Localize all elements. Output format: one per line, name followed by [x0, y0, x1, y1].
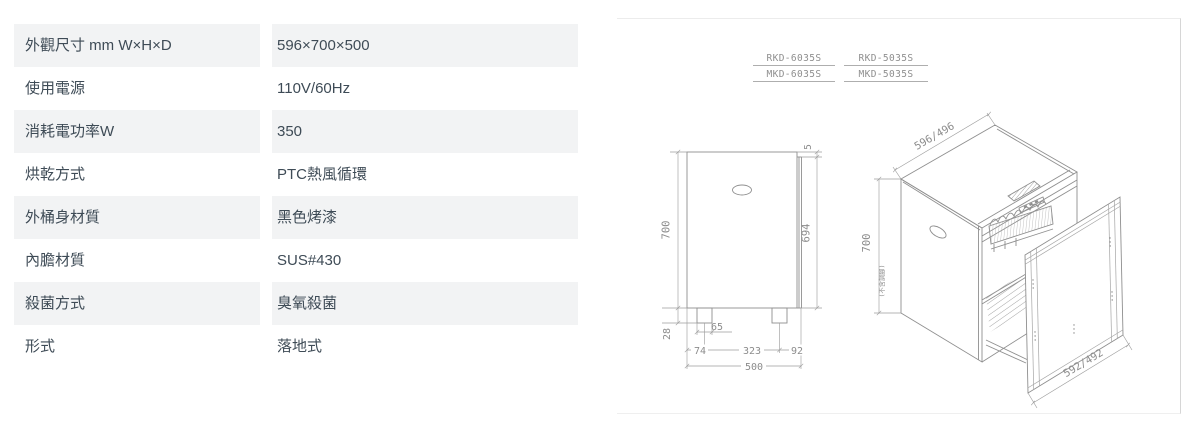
dim-height: 700 [661, 221, 673, 240]
spec-value: 黑色烤漆 [272, 196, 578, 239]
top-vent-grille [1008, 181, 1040, 201]
dim-foot-rear-offset: 92 [791, 346, 803, 357]
foot-right [772, 308, 787, 323]
side-view-dimension-lines [662, 150, 822, 369]
spec-label: 外觀尺寸 mm W×H×D [14, 24, 260, 67]
spec-value: 596×700×500 [272, 24, 578, 67]
side-view-dimension-labels: 700 5 694 28 65 74 323 92 500 [661, 144, 815, 373]
model-number: MKD-5035S [844, 69, 928, 82]
dim-foot-width: 65 [711, 322, 723, 333]
product-spec-page: 外觀尺寸 mm W×H×D 596×700×500 使用電源 110V/60Hz… [0, 0, 1182, 433]
spec-label: 內膽材質 [14, 239, 260, 282]
spec-value: SUS#430 [272, 239, 578, 282]
dim-foot-spacing: 323 [743, 346, 761, 357]
spec-label: 消耗電功率W [14, 110, 260, 153]
side-view-cabinet [687, 152, 802, 323]
dim-door-gap: 5 [803, 144, 814, 150]
spec-label: 外桶身材質 [14, 196, 260, 239]
spec-value: PTC熱風循環 [272, 153, 578, 196]
side-view-drawing: 700 5 694 28 65 74 323 92 500 [635, 135, 845, 380]
model-number: RKD-6035S [753, 53, 835, 66]
model-number: RKD-5035S [844, 53, 928, 66]
spec-label: 形式 [14, 325, 260, 368]
dim-door-height: 694 [801, 224, 813, 243]
dim-height-note: (不含調腳) [877, 265, 886, 298]
dim-top-width: 596/496 [912, 120, 956, 153]
spec-value: 臭氧殺菌 [272, 282, 578, 325]
handle-oval [733, 185, 752, 195]
handle-oval [928, 224, 948, 241]
spec-value: 350 [272, 110, 578, 153]
spec-label: 殺菌方式 [14, 282, 260, 325]
dim-base-height: 28 [662, 328, 673, 340]
dim-depth: 500 [745, 362, 763, 373]
spec-label: 烘乾方式 [14, 153, 260, 196]
model-number-list: RKD-6035S RKD-5035S MKD-6035S MKD-5035S [753, 53, 928, 82]
spec-value: 落地式 [272, 325, 578, 368]
dim-foot-front-offset: 74 [694, 346, 706, 357]
model-number: MKD-6035S [753, 69, 835, 82]
foot-left [697, 308, 712, 323]
isometric-view-drawing: 596/496 700 (不含調腳) 592/492 [856, 103, 1138, 418]
spec-label: 使用電源 [14, 67, 260, 110]
spec-value: 110V/60Hz [272, 67, 578, 110]
dim-height: 700 [861, 234, 873, 253]
